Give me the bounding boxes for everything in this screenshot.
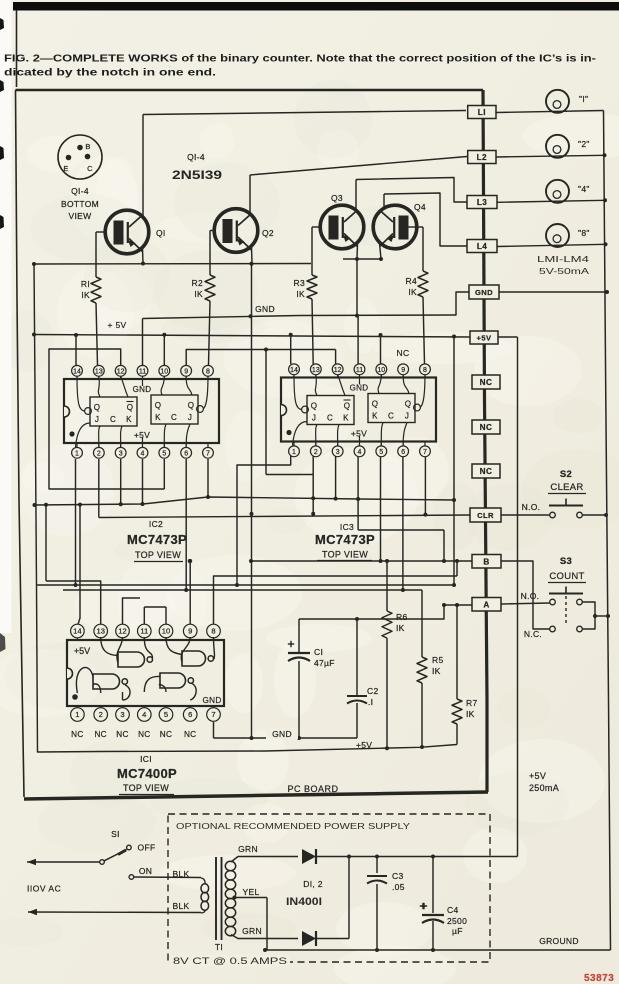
- svg-text:YEL: YEL: [243, 887, 260, 897]
- svg-text:5: 5: [162, 450, 166, 457]
- svg-text:Q: Q: [311, 402, 318, 411]
- svg-text:3: 3: [119, 450, 123, 457]
- svg-text:OFF: OFF: [138, 843, 156, 853]
- svg-text:+5V: +5V: [529, 771, 546, 781]
- svg-text:NC: NC: [116, 730, 128, 739]
- svg-text:GND: GND: [350, 384, 369, 393]
- svg-text:QI-4: QI-4: [187, 152, 205, 162]
- svg-text:dicated by the notch in one en: dicated by the notch in one end.: [4, 68, 216, 79]
- svg-text:IK: IK: [396, 623, 405, 633]
- svg-text:R6: R6: [396, 612, 407, 622]
- svg-text:C2: C2: [367, 686, 378, 696]
- svg-text:C: C: [87, 164, 93, 173]
- svg-text:5: 5: [164, 710, 168, 719]
- svg-text:Q4: Q4: [414, 202, 426, 212]
- svg-text:QI: QI: [156, 228, 166, 238]
- svg-text:S3: S3: [560, 556, 572, 567]
- svg-text:"8": "8": [578, 228, 590, 238]
- svg-text:1: 1: [292, 449, 296, 456]
- svg-text:8: 8: [423, 367, 427, 374]
- svg-text:Q: Q: [372, 400, 379, 409]
- svg-text:9: 9: [188, 627, 192, 636]
- svg-text:9: 9: [401, 367, 405, 374]
- svg-text:IK: IK: [81, 290, 90, 300]
- svg-text:GND: GND: [272, 729, 292, 739]
- svg-text:CLR: CLR: [477, 511, 494, 520]
- svg-text:N.C.: N.C.: [524, 629, 542, 639]
- svg-text:3: 3: [120, 710, 124, 719]
- svg-text:7: 7: [206, 450, 210, 457]
- svg-text:FIG. 2—COMPLETE WORKS of the b: FIG. 2—COMPLETE WORKS of the binary coun…: [4, 54, 596, 65]
- svg-text:7: 7: [423, 449, 427, 456]
- svg-text:OPTIONAL RECOMMENDED POWER SUP: OPTIONAL RECOMMENDED POWER SUPPLY: [176, 821, 410, 831]
- svg-text:5: 5: [379, 449, 383, 456]
- svg-text:14: 14: [290, 367, 298, 374]
- svg-text:+5V: +5V: [74, 646, 90, 656]
- svg-text:NC: NC: [397, 348, 410, 358]
- svg-text:PC BOARD: PC BOARD: [287, 784, 338, 794]
- svg-text:53873: 53873: [584, 973, 614, 984]
- svg-text:C: C: [110, 415, 116, 424]
- svg-text:NC: NC: [160, 730, 172, 739]
- svg-text:VIEW: VIEW: [69, 211, 92, 221]
- svg-text:NC: NC: [71, 730, 83, 739]
- svg-text:4: 4: [141, 450, 145, 457]
- svg-text:6: 6: [401, 449, 405, 456]
- svg-text:10: 10: [162, 627, 170, 636]
- svg-text:.I: .I: [368, 697, 373, 707]
- svg-text:1: 1: [75, 710, 79, 719]
- svg-text:B: B: [85, 142, 90, 151]
- svg-text:R2: R2: [192, 278, 203, 288]
- svg-text:Q: Q: [344, 402, 351, 411]
- svg-text:DI, 2: DI, 2: [303, 879, 322, 889]
- svg-text:5V-50mA: 5V-50mA: [539, 266, 589, 276]
- svg-text:2: 2: [97, 450, 101, 457]
- svg-text:LMI-LM4: LMI-LM4: [537, 254, 589, 264]
- svg-text:K: K: [372, 412, 378, 421]
- svg-text:TOP VIEW: TOP VIEW: [123, 783, 169, 793]
- svg-text:IK: IK: [408, 287, 417, 297]
- svg-text:11: 11: [140, 627, 148, 636]
- svg-text:+5V: +5V: [356, 740, 372, 750]
- svg-text:BOTTOM: BOTTOM: [61, 199, 99, 209]
- svg-text:GRN: GRN: [242, 926, 262, 936]
- svg-text:TI: TI: [215, 942, 223, 952]
- svg-text:C: C: [171, 413, 177, 422]
- svg-text:C: C: [327, 414, 333, 423]
- svg-text:13: 13: [95, 368, 103, 375]
- svg-text:TOP VIEW: TOP VIEW: [322, 550, 368, 560]
- svg-text:7: 7: [211, 710, 215, 719]
- svg-text:Q: Q: [155, 401, 162, 410]
- svg-text:14: 14: [73, 627, 81, 636]
- svg-text:L4: L4: [477, 242, 487, 251]
- svg-text:NC: NC: [94, 730, 106, 739]
- svg-text:R5: R5: [432, 655, 443, 665]
- svg-text:NC: NC: [480, 423, 493, 432]
- svg-text:13: 13: [312, 367, 320, 374]
- svg-text:µF: µF: [452, 926, 463, 936]
- svg-text:IN400I: IN400I: [286, 896, 322, 908]
- svg-text:Q: Q: [188, 401, 195, 410]
- svg-text:N.O.: N.O.: [521, 591, 540, 601]
- svg-text:2: 2: [99, 710, 103, 719]
- svg-text:MC7473P: MC7473P: [315, 532, 375, 547]
- svg-text:ICI: ICI: [140, 754, 152, 764]
- svg-text:A: A: [483, 600, 489, 609]
- svg-text:K: K: [155, 413, 161, 422]
- svg-text:Q: Q: [405, 400, 412, 409]
- svg-text:NC: NC: [480, 378, 493, 387]
- svg-text:K: K: [343, 414, 349, 423]
- svg-text:NC: NC: [480, 467, 493, 476]
- svg-text:2N5I39: 2N5I39: [172, 168, 222, 182]
- svg-text:Q: Q: [127, 403, 134, 412]
- svg-text:12: 12: [334, 367, 342, 374]
- svg-text:L3: L3: [477, 198, 487, 207]
- svg-text:BLK: BLK: [173, 901, 190, 911]
- svg-text:R7: R7: [466, 698, 477, 708]
- svg-text:NC: NC: [184, 730, 196, 739]
- svg-text:"4": "4": [578, 184, 590, 194]
- svg-text:4: 4: [142, 710, 146, 719]
- svg-text:2: 2: [314, 449, 318, 456]
- svg-text:CI: CI: [314, 647, 323, 657]
- svg-text:C3: C3: [392, 871, 403, 881]
- svg-text:GND: GND: [475, 288, 493, 297]
- svg-text:14: 14: [73, 368, 81, 375]
- svg-text:L2: L2: [477, 153, 487, 162]
- svg-text:IK: IK: [296, 289, 305, 299]
- svg-text:LI: LI: [478, 108, 486, 117]
- svg-text:S2: S2: [560, 469, 572, 480]
- svg-text:13: 13: [96, 627, 104, 636]
- svg-text:TOP VIEW: TOP VIEW: [135, 550, 181, 560]
- svg-text:"2": "2": [578, 139, 590, 149]
- svg-text:4: 4: [358, 449, 362, 456]
- svg-text:8V CT @ 0.5 AMPS: 8V CT @ 0.5 AMPS: [173, 956, 287, 966]
- svg-text:+5V: +5V: [477, 334, 492, 343]
- svg-text:GRN: GRN: [238, 844, 258, 854]
- svg-text:10: 10: [377, 367, 385, 374]
- svg-text:BLK: BLK: [173, 869, 190, 879]
- svg-text:10: 10: [160, 368, 168, 375]
- svg-text:250mA: 250mA: [529, 783, 559, 793]
- svg-text:8: 8: [206, 368, 210, 375]
- svg-text:IC3: IC3: [340, 522, 354, 532]
- svg-text:SI: SI: [111, 829, 120, 839]
- svg-text:MC7473P: MC7473P: [127, 532, 187, 547]
- svg-text:IIOV AC: IIOV AC: [27, 884, 61, 894]
- svg-text:.05: .05: [392, 882, 405, 892]
- svg-text:COUNT: COUNT: [549, 571, 584, 582]
- svg-text:J: J: [312, 414, 316, 423]
- svg-text:RI: RI: [81, 279, 90, 289]
- svg-text:B: B: [483, 557, 489, 566]
- svg-text:C: C: [388, 412, 394, 421]
- svg-text:GND: GND: [255, 304, 275, 314]
- svg-text:12: 12: [117, 368, 125, 375]
- svg-text:J: J: [405, 412, 409, 421]
- svg-text:R4: R4: [406, 276, 417, 286]
- svg-text:11: 11: [139, 368, 146, 375]
- svg-text:GROUND: GROUND: [539, 936, 579, 946]
- svg-text:IK: IK: [194, 289, 203, 299]
- svg-text:8: 8: [211, 627, 215, 636]
- svg-text:+ 5V: + 5V: [108, 320, 127, 330]
- svg-text:ON: ON: [139, 866, 152, 876]
- svg-text:12: 12: [118, 627, 126, 636]
- svg-text:11: 11: [356, 367, 363, 374]
- svg-text:J: J: [188, 413, 192, 422]
- svg-text:E: E: [63, 164, 68, 173]
- svg-text:N.O.: N.O.: [522, 502, 541, 512]
- svg-text:J: J: [95, 415, 99, 424]
- svg-text:NC: NC: [138, 730, 150, 739]
- svg-text:IK: IK: [466, 709, 475, 719]
- svg-text:MC7400P: MC7400P: [117, 766, 177, 781]
- svg-text:2500: 2500: [447, 916, 467, 926]
- svg-text:C4: C4: [447, 905, 458, 915]
- svg-text:K: K: [126, 415, 132, 424]
- svg-text:IK: IK: [432, 666, 441, 676]
- svg-text:R3: R3: [294, 278, 305, 288]
- svg-text:9: 9: [184, 368, 188, 375]
- svg-text:QI-4: QI-4: [71, 186, 89, 196]
- svg-text:Q3: Q3: [331, 193, 343, 203]
- svg-text:Q2: Q2: [262, 228, 274, 238]
- svg-text:IC2: IC2: [149, 519, 163, 529]
- svg-text:47µF: 47µF: [314, 658, 335, 668]
- svg-text:6: 6: [188, 710, 192, 719]
- svg-text:6: 6: [184, 450, 188, 457]
- svg-text:CLEAR: CLEAR: [550, 482, 583, 493]
- svg-text:GND: GND: [202, 696, 221, 705]
- svg-text:"I": "I": [579, 94, 588, 104]
- svg-text:1: 1: [75, 450, 79, 457]
- svg-text:3: 3: [336, 449, 340, 456]
- svg-text:Q: Q: [94, 403, 101, 412]
- svg-text:GND: GND: [133, 385, 152, 394]
